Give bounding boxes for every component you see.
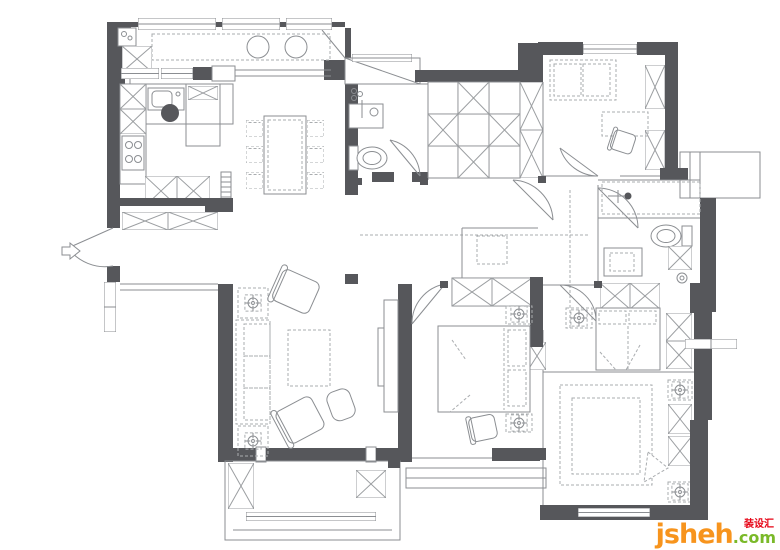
wardrobe: [492, 278, 532, 306]
side-table: [238, 288, 268, 318]
dining-room: [246, 80, 358, 194]
chair-icon: [246, 120, 263, 137]
balcony-south: [225, 458, 400, 540]
watermark-tld: .com: [733, 528, 776, 547]
lamp-icon: [571, 310, 587, 326]
floor-drain-icon: [677, 273, 687, 283]
chair-icon: [307, 172, 324, 189]
armchair-icon: [465, 412, 498, 445]
wardrobe: [600, 283, 630, 309]
chair-icon: [307, 146, 324, 163]
coffee-table: [288, 330, 330, 386]
wardrobe: [630, 283, 660, 309]
watermark-brand: jsheh: [656, 519, 733, 550]
lamp-icon: [511, 306, 527, 322]
bedroom-3: [398, 228, 546, 488]
daybed: [550, 60, 616, 100]
dining-table: [264, 116, 306, 194]
window-icon: [246, 512, 376, 521]
window-icon: [352, 54, 412, 62]
door-leaf: [560, 148, 598, 176]
lamp-icon: [672, 382, 688, 398]
window-icon: [685, 339, 737, 349]
window-icon: [222, 18, 280, 30]
bed: [438, 326, 530, 412]
toilet-icon: [651, 225, 692, 247]
sofa: [236, 320, 270, 424]
lamp-icon: [511, 415, 527, 431]
thresholds: [352, 176, 602, 288]
wardrobe: [520, 130, 543, 178]
chair-icon: [307, 120, 324, 137]
entry-arrow-icon: [62, 243, 80, 259]
window-icon: [121, 68, 159, 79]
bedroom-1: [538, 42, 678, 178]
cloakroom: [415, 43, 553, 220]
cabinet: [668, 436, 692, 466]
cabinet: [668, 246, 692, 270]
planter-icon: [285, 36, 307, 58]
entry: [62, 198, 233, 332]
lamp-icon: [245, 295, 261, 311]
shoe-bench: [122, 212, 168, 230]
site-watermark: jsheh装设汇.com: [656, 521, 776, 548]
window-icon: [583, 44, 637, 54]
corner-diagonal: [322, 30, 345, 58]
small-appliance: [118, 28, 136, 46]
wardrobe: [666, 313, 692, 341]
window-icon: [104, 282, 116, 332]
balcony-counter: [152, 34, 330, 60]
wardrobe: [645, 65, 665, 109]
cabinet: [668, 404, 692, 434]
ottoman: [325, 387, 358, 423]
window-icon: [138, 18, 216, 30]
shoe-bench: [168, 212, 218, 230]
living-room: [218, 264, 408, 462]
window-icon: [161, 68, 193, 79]
chair-icon: [246, 146, 263, 163]
slider-door: [212, 66, 235, 81]
lamp-icon: [672, 484, 688, 500]
armchair-icon: [267, 264, 323, 318]
master-bed: [560, 385, 668, 485]
kitchen: [107, 80, 233, 210]
balcony-cabinet: [356, 470, 386, 498]
tv-icon: [378, 328, 384, 386]
chair-icon: [246, 172, 263, 189]
window-icon: [578, 508, 650, 517]
wardrobe: [520, 82, 543, 130]
door-leaf: [390, 140, 420, 176]
balcony-kitchen-divider: [107, 66, 345, 81]
door-leaf: [560, 285, 596, 321]
quilt-fold: [644, 452, 668, 482]
pot-icon: [161, 104, 179, 122]
desk: [477, 236, 507, 264]
floor-plan-canvas: jsheh装设汇.com: [0, 0, 780, 550]
planter-icon: [247, 36, 269, 58]
tv-cabinet: [378, 300, 398, 412]
basin-icon: [349, 100, 383, 128]
cooktop-icon: [122, 136, 144, 170]
entry-door-leaf: [68, 228, 113, 248]
hallway: [345, 185, 590, 330]
balcony-cabinet: [228, 463, 254, 509]
desk-chair-icon: [607, 127, 637, 157]
bed: [596, 308, 660, 370]
window-icon: [286, 18, 332, 30]
ac-platform: [680, 152, 760, 198]
armchair-icon: [270, 392, 328, 449]
wardrobe: [452, 278, 492, 306]
watermark-cjk: 装设汇: [744, 520, 774, 530]
floor-plan-drawing: [0, 0, 780, 550]
toilet-icon: [349, 146, 387, 170]
